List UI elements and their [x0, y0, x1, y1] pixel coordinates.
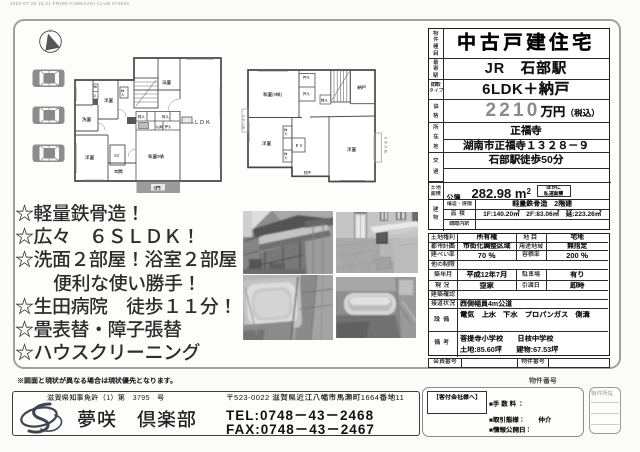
svg-text:洋室: 洋室 [346, 146, 356, 152]
svg-text:SV: SV [114, 153, 120, 158]
svg-text:ベランダ: ベランダ [241, 114, 245, 130]
svg-text:物入: 物入 [320, 98, 328, 103]
svg-text:仏間: 仏間 [155, 124, 163, 129]
svg-text:8門: 8門 [154, 185, 162, 190]
svg-text:洋室: 洋室 [103, 97, 113, 103]
svg-text:押入: 押入 [302, 76, 310, 80]
svg-text:ベランダ: ベランダ [383, 136, 388, 154]
svg-text:物入: 物入 [137, 114, 145, 119]
svg-text:ＬＤＫ: ＬＤＫ [194, 119, 211, 126]
svg-text:和室(8帖): 和室(8帖) [263, 91, 283, 97]
svg-text:押入: 押入 [164, 125, 172, 129]
svg-text:和室8帖: 和室8帖 [148, 153, 165, 159]
svg-text:物入: 物入 [161, 114, 169, 119]
svg-text:納戸: 納戸 [357, 85, 366, 90]
svg-text:浴室: 浴室 [162, 80, 171, 85]
svg-text:物干: 物干 [303, 170, 312, 175]
svg-text:玄関: 玄関 [114, 169, 122, 174]
svg-text:ＥＶ: ＥＶ [295, 143, 303, 148]
svg-text:洋室: 洋室 [84, 154, 94, 160]
svg-text:洗室: 洗室 [82, 117, 91, 122]
svg-text:押入: 押入 [302, 92, 310, 96]
svg-text:洋室: 洋室 [261, 140, 271, 146]
